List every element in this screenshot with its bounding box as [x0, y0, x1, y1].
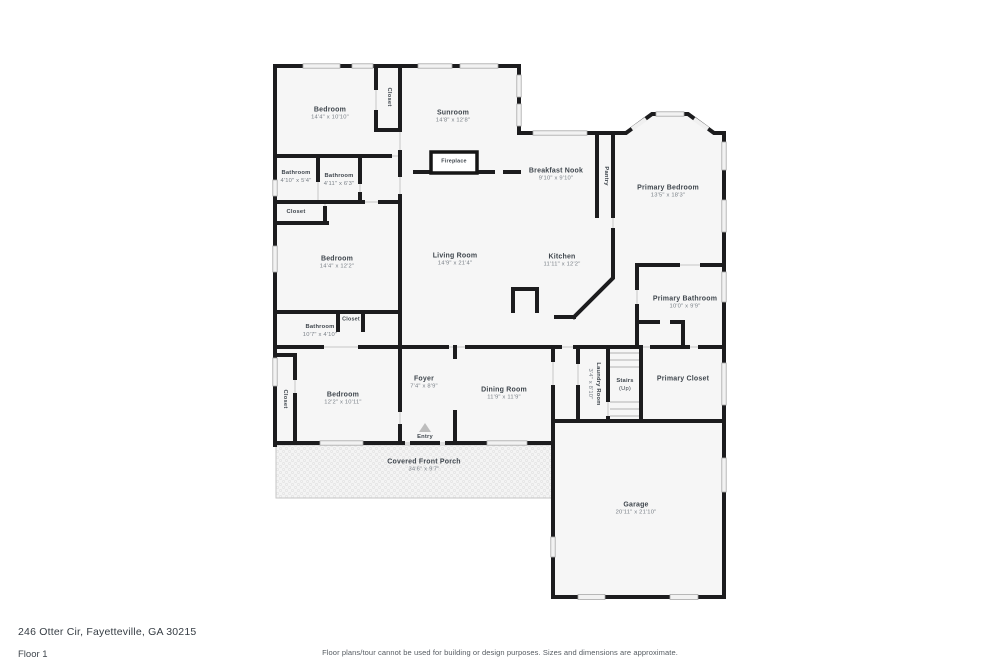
porch-area	[276, 445, 552, 498]
fireplace-box	[431, 152, 477, 173]
floor-plan-drawing	[0, 0, 1000, 667]
address-text: 246 Otter Cir, Fayetteville, GA 30215	[18, 626, 196, 638]
floor-plan-page: Bedroom 14'4" x 10'10" Closet Sunroom 14…	[0, 0, 1000, 667]
room-fills-layer	[275, 66, 724, 597]
disclaimer-text: Floor plans/tour cannot be used for buil…	[0, 648, 1000, 657]
